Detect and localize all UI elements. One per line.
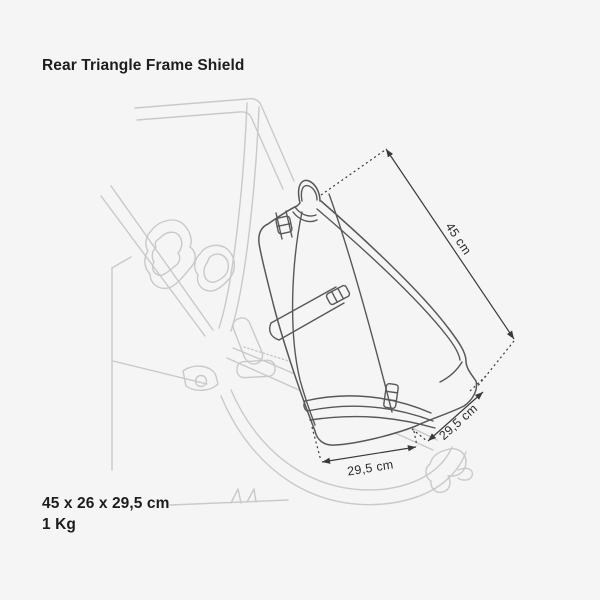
product-diagram-page: Rear Triangle Frame Shield [0,0,600,600]
spoke-hint-1 [231,489,241,503]
panel-top-line [112,257,131,268]
dimension-label-height: 45 cm [443,220,474,257]
top-tube-lower-line [137,112,283,189]
down-tube-upper-line [111,186,213,330]
spec-dimensions: 45 x 26 x 29,5 cm [42,493,170,514]
bottle-cage2-inner-outline [204,254,228,282]
bag-silhouette [259,180,477,445]
derailleur-outline [426,449,466,493]
product-specs: 45 x 26 x 29,5 cm 1 Kg [42,493,170,535]
panel-diagonal-line [113,361,207,384]
spec-weight: 1 Kg [42,514,170,535]
wheel-bottom-line [170,500,288,505]
shield-bag-line-art [259,180,477,445]
dimension-label-width: 29,5 cm [346,457,394,478]
top-tube-seatstay-line [135,99,294,181]
bottle-cage-inner-outline [152,232,181,275]
seat-tube-left-line [219,103,247,328]
dimension-line [322,447,416,462]
spoke-hint-2 [247,489,256,502]
crank-arm-outline [233,318,263,364]
extension-line [321,150,385,195]
mid-strap-end-cap [270,323,279,340]
extension-line [477,341,514,387]
